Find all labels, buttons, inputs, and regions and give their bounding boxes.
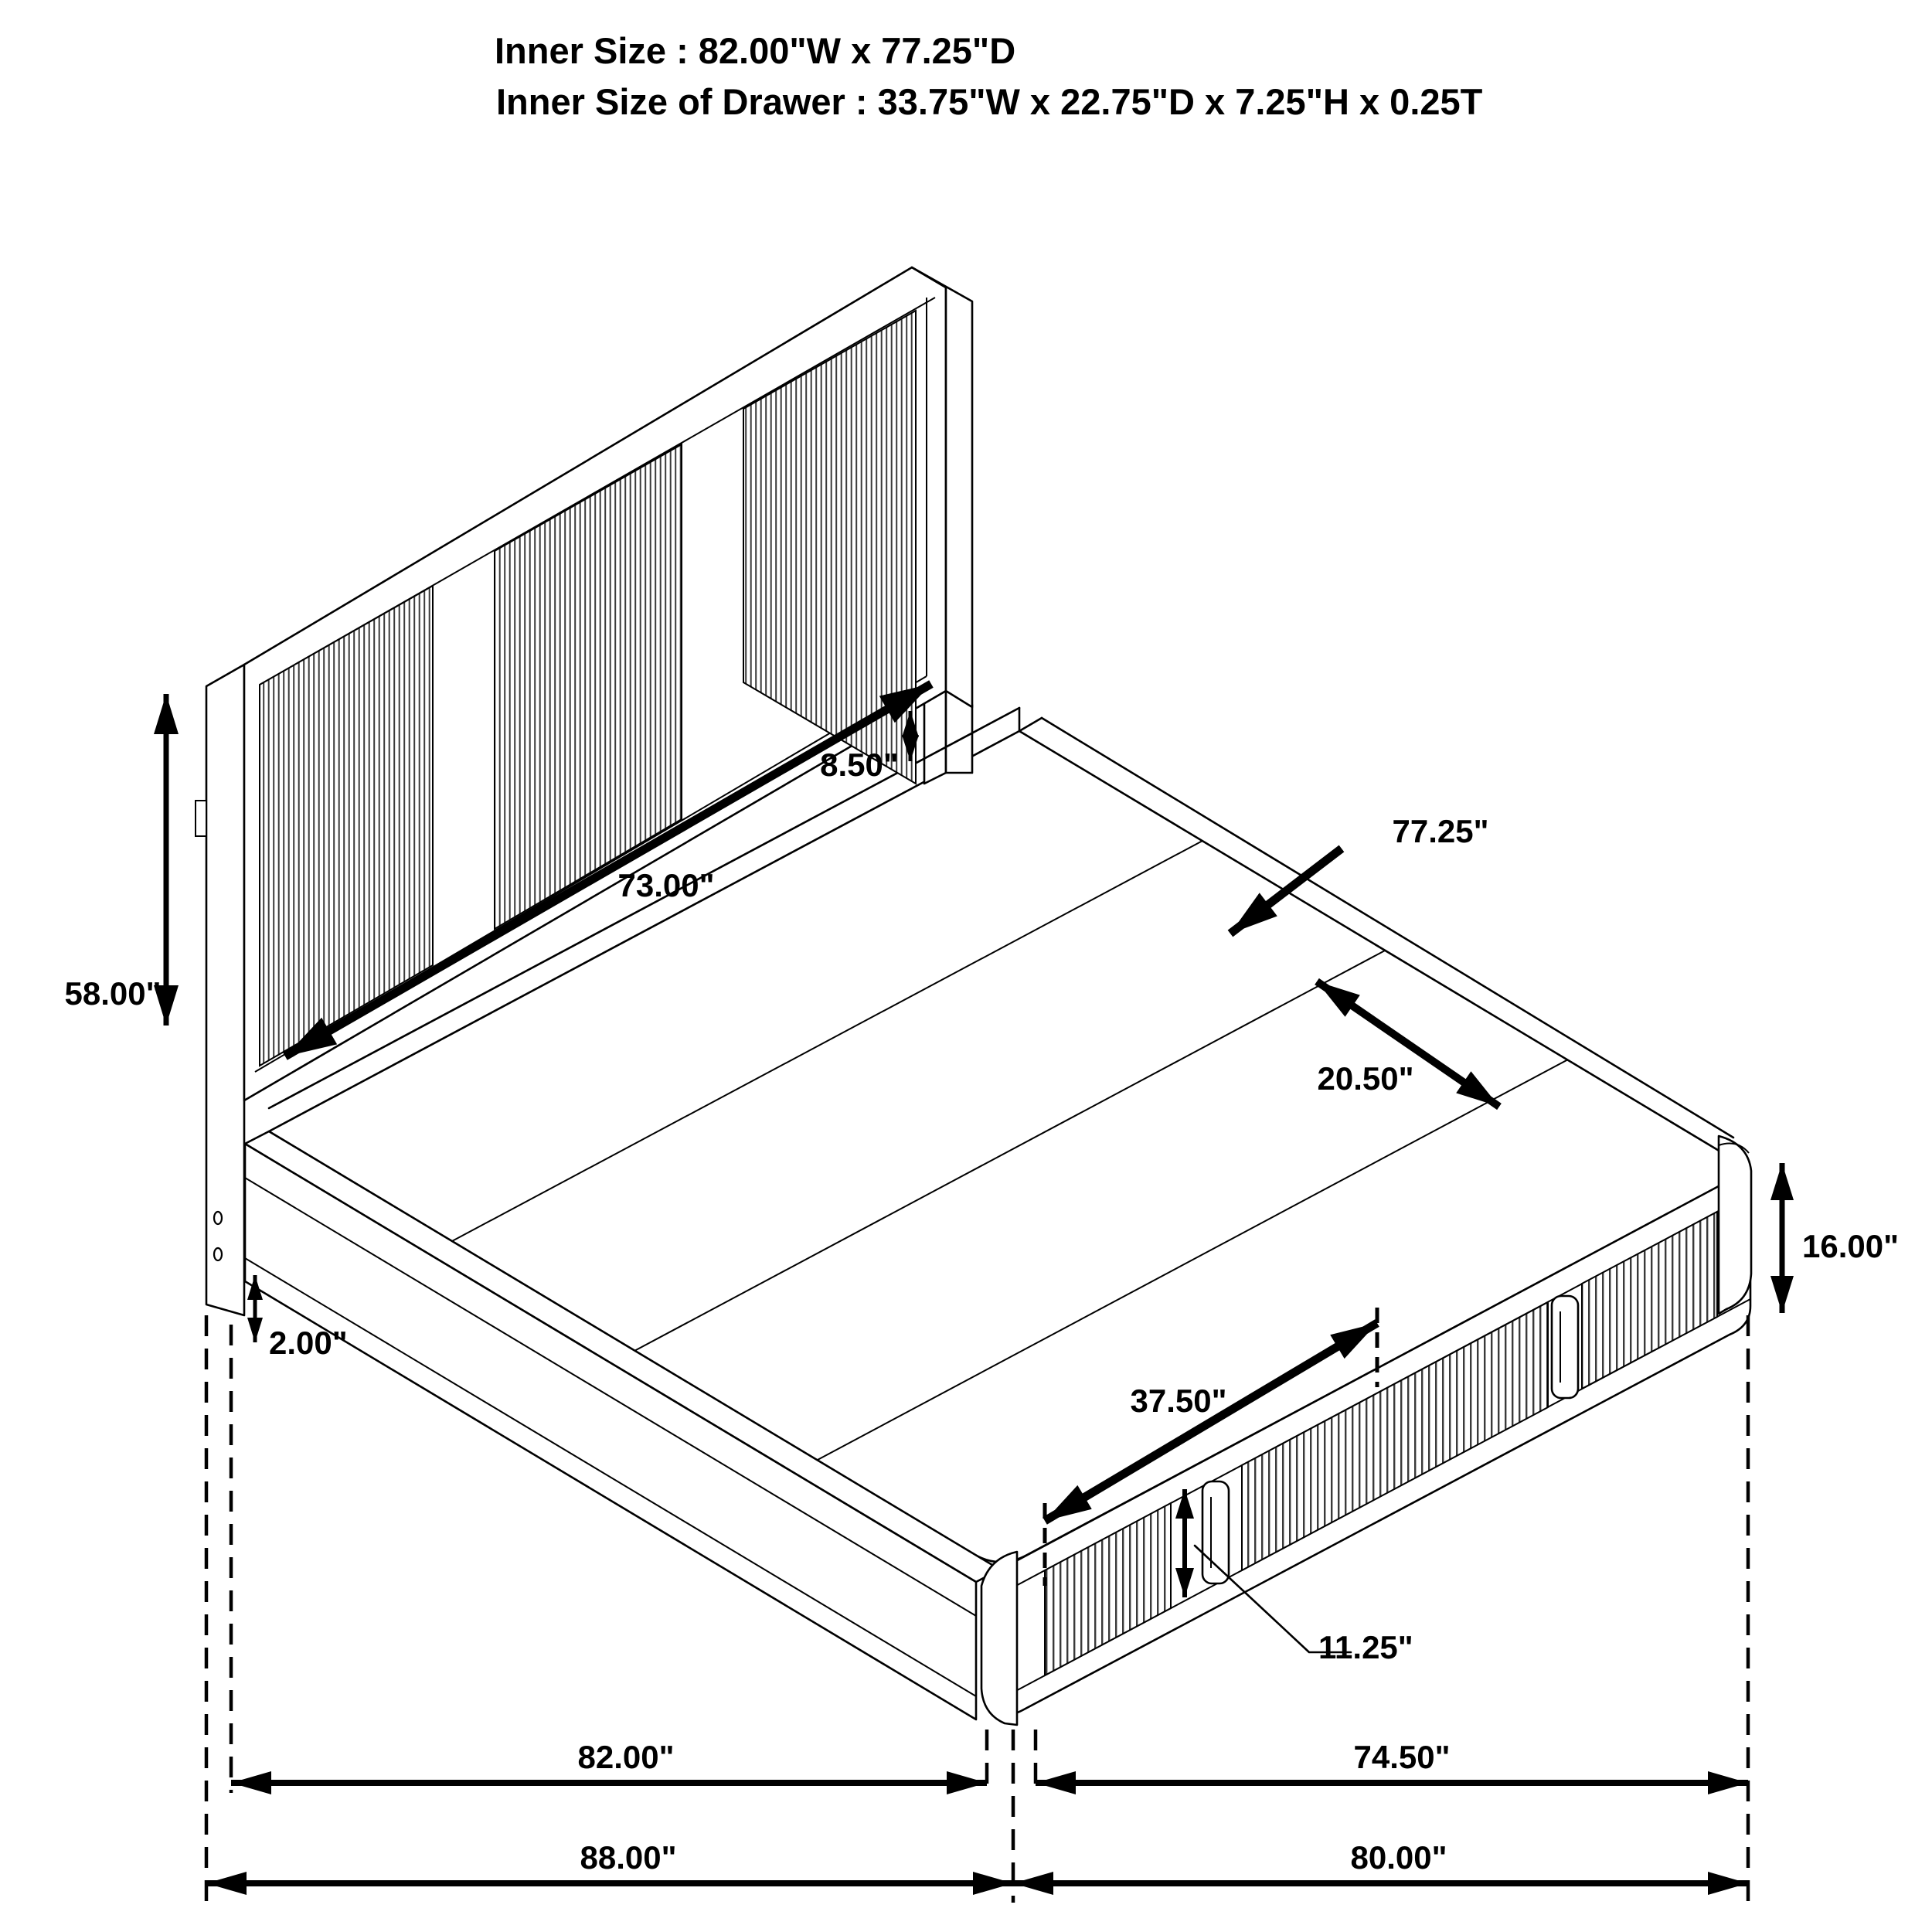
arrowhead — [247, 1318, 263, 1342]
dim-label: 88.00" — [580, 1839, 676, 1876]
arrowhead — [1013, 1872, 1053, 1895]
dim-overall-side-depth: 80.00" — [1013, 1839, 1748, 1895]
dim-footboard-side-width: 74.50" — [1036, 1739, 1748, 1794]
header: Inner Size : 82.00"W x 77.25"D Inner Siz… — [495, 30, 1483, 122]
arrowhead — [231, 1771, 271, 1794]
bed-dimension-diagram: 58.00" 8.50" 73.00" 77.25" 20.50" 16.00"… — [0, 0, 1932, 1932]
right-corner-post — [1719, 1136, 1751, 1314]
dim-footboard-height: 16.00" — [1770, 1163, 1899, 1313]
headboard-post-lower-front — [924, 691, 946, 784]
headboard-left-leg — [206, 665, 244, 1315]
dim-label: 16.00" — [1802, 1228, 1899, 1264]
arrowhead — [1036, 1771, 1076, 1794]
dim-label: 77.25" — [1392, 813, 1488, 849]
header-line1: Inner Size : 82.00"W x 77.25"D — [495, 30, 1015, 71]
dim-label: 11.25" — [1318, 1629, 1413, 1665]
dim-headboard-height: 58.00" — [64, 694, 179, 1026]
dim-label: 80.00" — [1350, 1839, 1447, 1876]
arrowhead — [154, 694, 179, 734]
dim-overall-width: 88.00" — [206, 1839, 1013, 1895]
drawer-handle-2 — [1552, 1296, 1578, 1398]
foot-corner-post — [981, 1552, 1017, 1725]
arrowhead — [1770, 1163, 1794, 1200]
arrowhead — [947, 1771, 987, 1794]
dim-label: 37.50" — [1130, 1383, 1226, 1419]
arrowhead — [1770, 1276, 1794, 1313]
dim-platform-depth: 77.25" — [1230, 813, 1489, 934]
drawer-handle-1 — [1202, 1481, 1229, 1583]
arrowhead — [1708, 1872, 1748, 1895]
dim-label: 73.00" — [617, 867, 714, 903]
dim-label: 20.50" — [1317, 1060, 1413, 1097]
dim-label: 58.00" — [64, 975, 161, 1012]
dim-label: 2.00" — [269, 1325, 348, 1361]
arrowhead — [973, 1872, 1013, 1895]
arrowhead — [206, 1872, 247, 1895]
dim-label: 82.00" — [577, 1739, 674, 1775]
bed-drawing — [196, 267, 1751, 1725]
rail-bracket — [196, 801, 206, 836]
header-line2: Inner Size of Drawer : 33.75"W x 22.75"D… — [496, 81, 1483, 122]
arrowhead — [1708, 1771, 1748, 1794]
dim-label: 74.50" — [1353, 1739, 1450, 1775]
dim-inner-width: 82.00" — [231, 1739, 987, 1794]
dim-label: 8.50" — [820, 747, 899, 783]
